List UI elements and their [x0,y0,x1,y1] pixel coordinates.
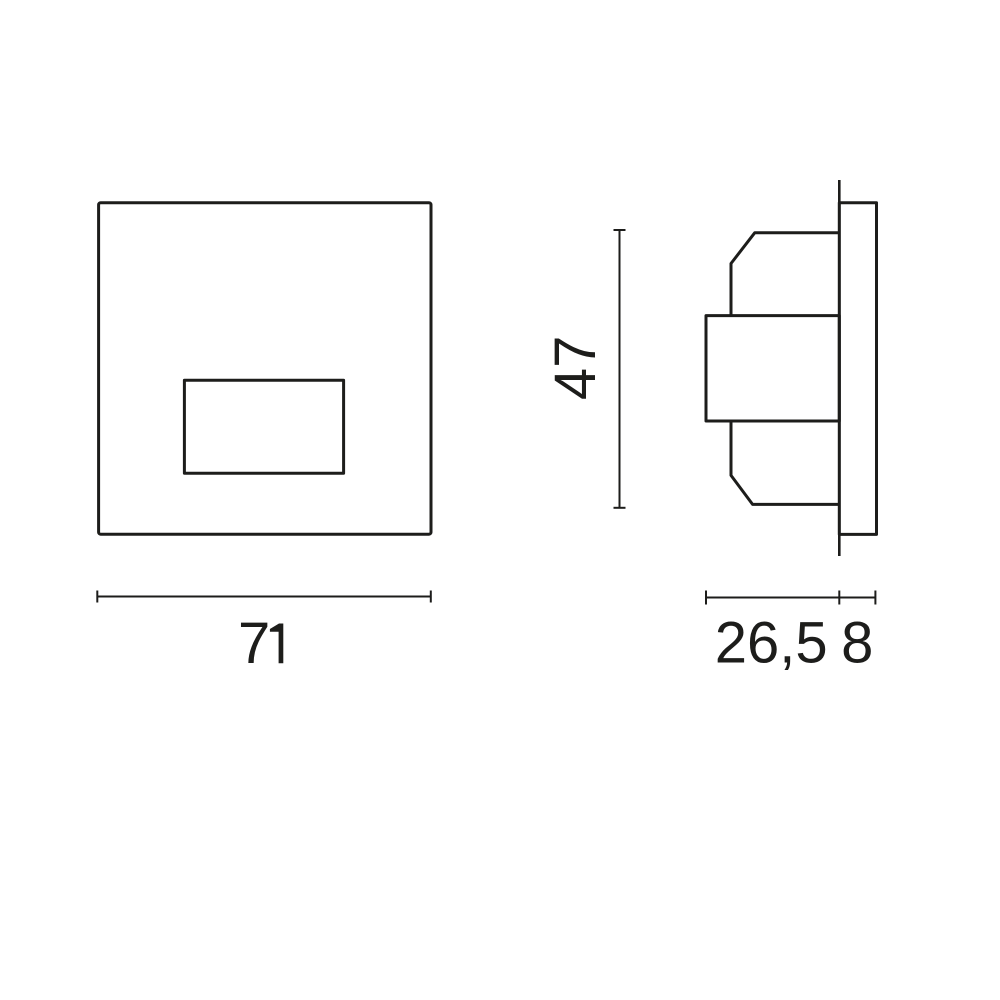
svg-text:47: 47 [543,336,608,401]
svg-text:8: 8 [841,611,873,676]
svg-text:7: 7 [238,611,270,676]
svg-text:26,5: 26,5 [715,611,828,676]
